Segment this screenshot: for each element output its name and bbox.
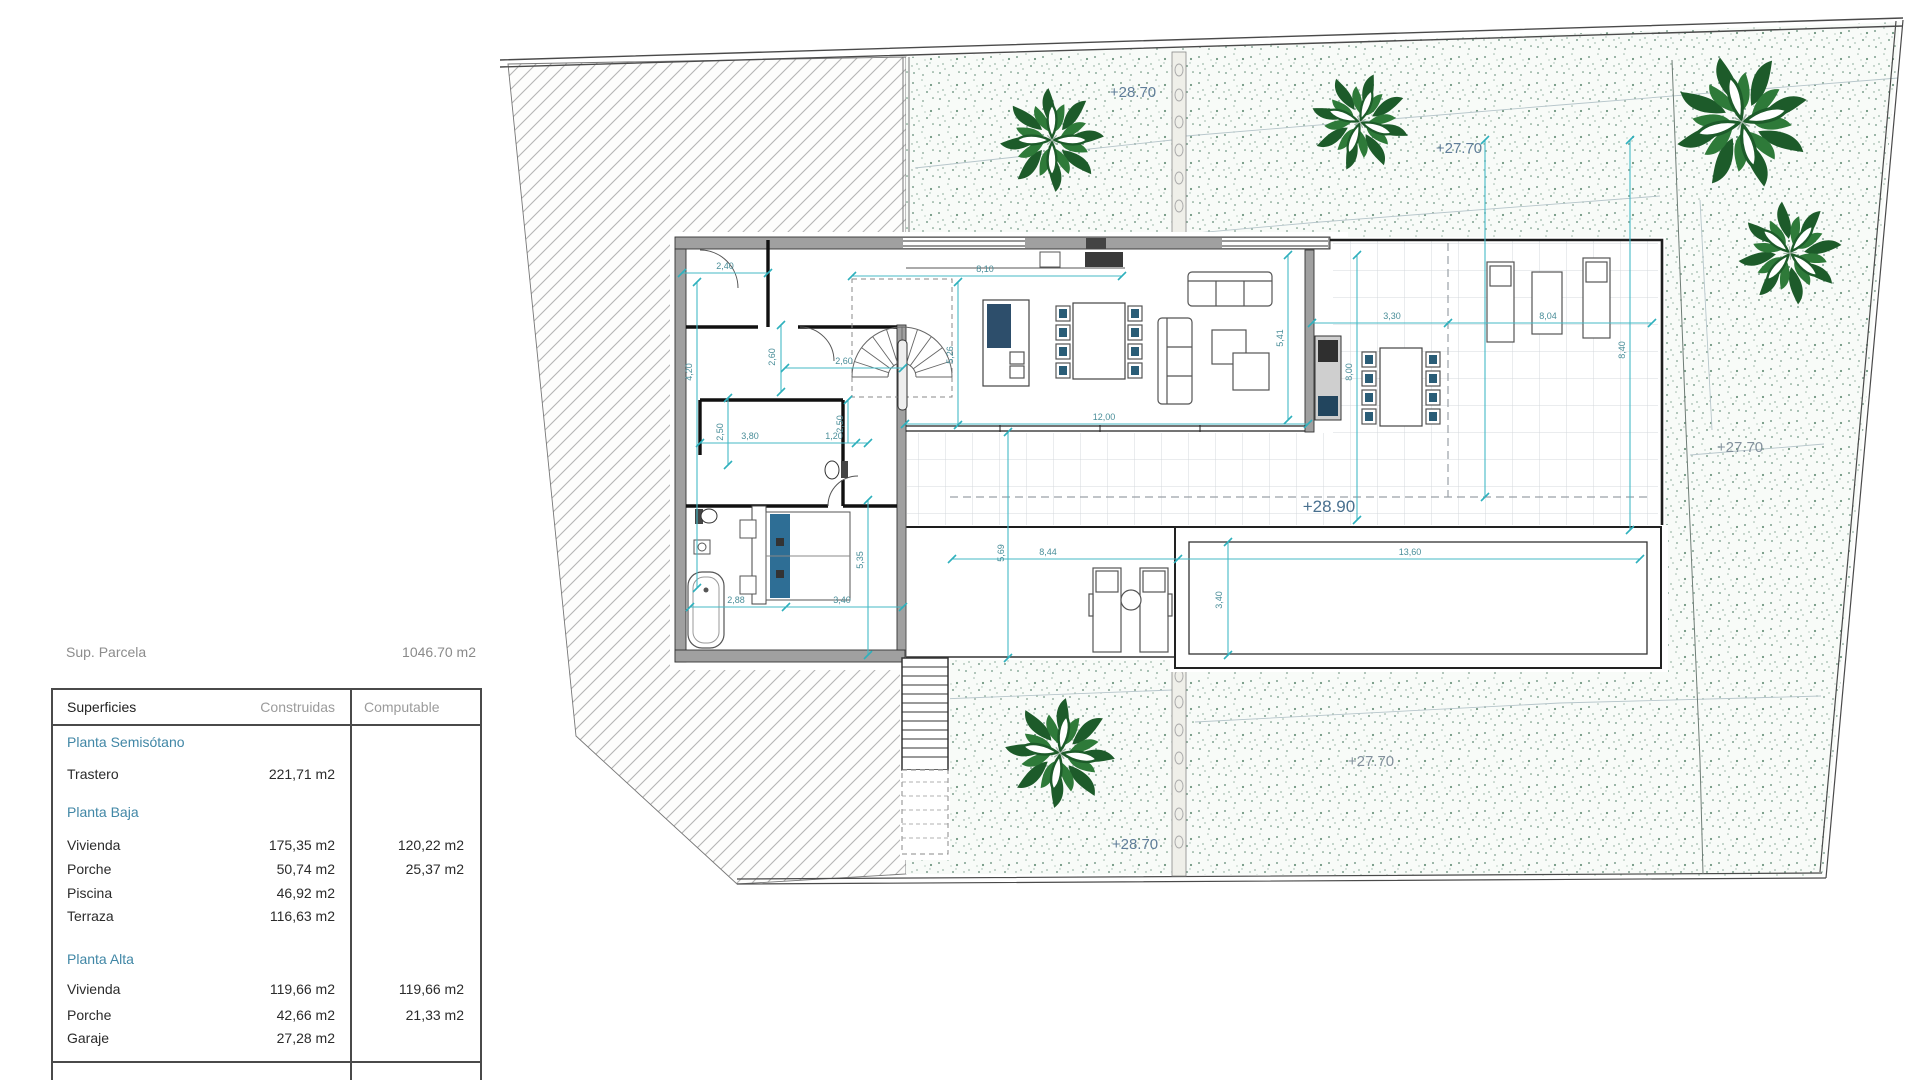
row-name: Piscina [67,885,112,901]
row-name: Porche [67,861,111,877]
row-construidas: 221,71 m2 [203,766,335,782]
entry-door [1086,238,1106,249]
dim-label: 5,41 [1275,329,1285,347]
row-construidas: 50,74 m2 [203,861,335,877]
garden-stairs [902,658,948,854]
elevation-right: +27.70 [1717,439,1763,456]
kitchen-unit [1315,336,1341,420]
section-title-label: Planta Semisótano [67,734,185,750]
dim-label: 5,69 [996,544,1006,562]
floor-plan-sheet: 2,40 8,10 4,20 2,60 2,60 5,26 12,00 5,41… [0,0,1920,1080]
dim-label: 2,50 [835,415,845,433]
dim-label: 5,35 [855,551,865,569]
section-title: Planta Alta [53,951,480,971]
dim-label: 8,00 [1344,363,1354,381]
row-computable: 120,22 m2 [364,837,464,853]
col-header-computable: Computable [364,699,440,715]
row-construidas: 175,35 m2 [203,837,335,853]
dim-label: 2,60 [835,356,853,366]
dim-label: 3,40 [1214,591,1224,609]
table-row: Trastero 221,71 m2 [53,766,480,786]
parcel-value: 1046.70 m2 [338,644,476,660]
row-name: Garaje [67,1030,109,1046]
parcel-label: Sup. Parcela [66,644,146,660]
row-computable: 21,33 m2 [364,1007,464,1023]
row-name: Trastero [67,766,119,782]
surfaces-table: Superficies Construidas Computable Plant… [51,688,482,1080]
col-header-construidas: Construidas [203,699,335,715]
bed [740,506,850,604]
dim-label: 8,44 [1039,547,1057,557]
section-title: Planta Semisótano [53,734,480,754]
table-total-separator [53,1061,480,1063]
dim-label: 8,10 [976,264,994,274]
table-row: Porche 50,74 m2 25,37 m2 [53,861,480,881]
section-title-label: Planta Baja [67,804,139,820]
row-name: Terraza [67,908,114,924]
section-title-label: Planta Alta [67,951,134,967]
elevation-top-center: +28.70 [1110,84,1156,101]
dim-label: 8,04 [1539,311,1557,321]
elevation-top-right: +27.70 [1436,140,1482,157]
dining-table [1073,303,1125,379]
dim-label: 2,40 [716,261,734,271]
table-row: Vivienda 119,66 m2 119,66 m2 [53,981,480,1001]
dim-label: 2,60 [767,348,777,366]
row-computable: 25,37 m2 [364,861,464,877]
row-computable: 119,66 m2 [364,981,464,997]
dim-label: 12,00 [1093,412,1116,422]
dim-label: 2,50 [715,423,725,441]
stone-wall-top [1172,52,1186,238]
row-construidas: 42,66 m2 [203,1007,335,1023]
row-name: Porche [67,1007,111,1023]
table-row: Piscina 46,92 m2 [53,885,480,905]
stone-wall-bottom [1172,658,1186,876]
row-construidas: 116,63 m2 [203,908,335,924]
row-construidas: 27,28 m2 [203,1030,335,1046]
table-header-row: Superficies Construidas Computable [53,690,480,726]
row-construidas: 119,66 m2 [203,981,335,997]
col-header-superficies: Superficies [67,699,136,715]
dim-label: 2,88 [727,595,745,605]
elevation-main-floor: +28.90 [1303,497,1355,516]
row-name: Vivienda [67,981,120,997]
dim-label: 13,60 [1399,547,1422,557]
outdoor-dining-table [1380,348,1422,426]
section-title: Planta Baja [53,804,480,824]
dim-label: 3,30 [1383,311,1401,321]
table-row: Garaje 27,28 m2 [53,1030,480,1050]
parcel-summary: Sup. Parcela 1046.70 m2 [66,644,476,664]
dim-label: 5,26 [945,346,955,364]
row-name: Vivienda [67,837,120,853]
table-row: Vivienda 175,35 m2 120,22 m2 [53,837,480,857]
row-construidas: 46,92 m2 [203,885,335,901]
table-row: Terraza 116,63 m2 [53,908,480,928]
table-row: Porche 42,66 m2 21,33 m2 [53,1007,480,1027]
dim-label: 3,40 [833,595,851,605]
elevation-bottom-center: +28.70 [1112,836,1158,853]
dim-label: 3,80 [741,431,759,441]
elevation-bottom-right: +27.70 [1348,753,1394,770]
dim-label: 4,20 [684,363,694,381]
dim-label: 8,40 [1617,341,1627,359]
